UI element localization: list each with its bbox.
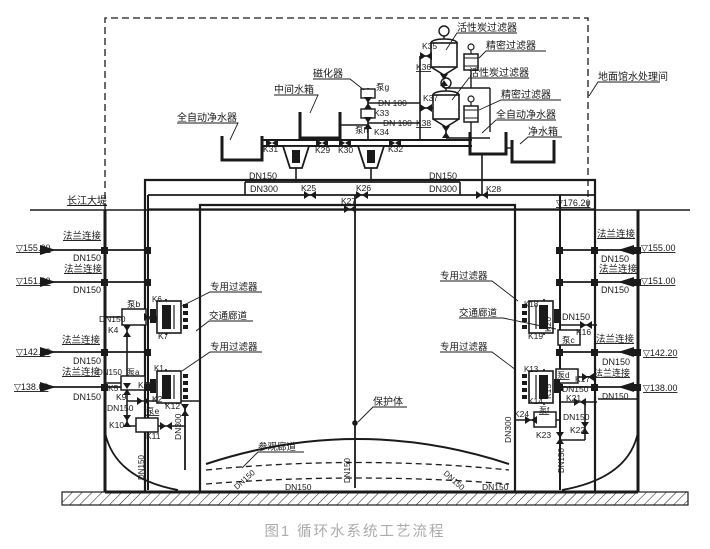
- label-k6: K6: [152, 295, 162, 304]
- label-flange-left-1: 法兰连接: [63, 230, 102, 242]
- label-dn150-bottom-1: DN150: [285, 482, 312, 492]
- label-flange-right-4: 法兰连接: [594, 367, 630, 378]
- label-k37: K37: [423, 93, 438, 103]
- label-elev-151-right: ▽151.00: [641, 276, 675, 286]
- label-flange-right-2: 法兰连接: [599, 263, 638, 275]
- label-dn150-left-2: DN150: [73, 285, 101, 295]
- label-flange-left-4: 法兰连接: [62, 366, 101, 378]
- label-k22: K22: [570, 425, 585, 435]
- label-k18: K18: [524, 300, 539, 309]
- label-elev-176-20: ▽176.20: [556, 198, 590, 208]
- label-activated-carbon-filter-1: 活性炭过滤器: [457, 21, 517, 34]
- label-k21: K21: [566, 393, 581, 403]
- pump-h-symbol: [361, 109, 375, 118]
- label-dn300-right-vert: DN300: [503, 416, 513, 443]
- label-elev-151-left: ▽151.00: [16, 276, 50, 286]
- label-elev-155-left: ▽155.00: [16, 243, 50, 253]
- label-k19: K19: [528, 331, 543, 341]
- label-pump-f: 泵f: [539, 406, 550, 415]
- label-traffic-corridor-left: 交通廊道: [209, 310, 248, 322]
- label-k30: K30: [338, 145, 353, 155]
- label-pump-g: 泵g: [376, 82, 390, 92]
- label-k23: K23: [536, 430, 551, 440]
- label-k8: K8: [147, 314, 158, 324]
- label-k38: K38: [416, 118, 431, 128]
- label-k7: K7: [158, 331, 169, 341]
- label-k9: K9: [116, 392, 127, 402]
- label-k15: K15: [543, 384, 553, 399]
- label-pump-c: 泵c: [562, 335, 576, 345]
- label-precision-filter-2: 精密过滤器: [501, 88, 551, 101]
- label-k27: K27: [341, 196, 356, 206]
- label-k35: K35: [422, 41, 437, 51]
- label-k17: K17: [575, 374, 590, 384]
- label-elev-142-left: ▽142.20: [16, 347, 50, 357]
- label-k31: K31: [263, 144, 278, 154]
- process-diagram: 活性炭过滤器精密过滤器活性炭过滤器精密过滤器全自动净水器净水箱磁化器中间水箱全自…: [0, 0, 710, 519]
- label-dn150-bottom-2: DN150: [482, 482, 509, 492]
- label-k33: K33: [374, 108, 389, 118]
- label-k3: K3: [138, 380, 149, 390]
- label-dn150-left-3: DN150: [99, 314, 126, 324]
- label-activated-carbon-filter-2: 活性炭过滤器: [469, 66, 529, 79]
- label-traffic-corridor-right: 交通廊道: [459, 307, 498, 319]
- label-dn150-left-4: DN150: [73, 356, 101, 366]
- label-k29: K29: [315, 145, 330, 155]
- label-k20: K20: [543, 317, 553, 332]
- label-dn150-right-1: DN150: [601, 254, 629, 264]
- figure-caption: 图1 循环水系统工艺流程: [0, 520, 710, 541]
- label-k25: K25: [301, 183, 316, 193]
- label-dn150-right-vert: DN150: [557, 448, 566, 473]
- label-pump-e: 泵e: [146, 406, 160, 416]
- label-k12: K12: [165, 401, 180, 411]
- label-auto-purifier-right: 全自动净水器: [496, 108, 556, 121]
- label-dn150-left-1: DN150: [73, 253, 101, 263]
- label-k4: K4: [108, 325, 119, 335]
- label-clean-water-tank: 净水箱: [528, 125, 558, 138]
- label-elev-142-right: ▽142.20: [643, 348, 677, 358]
- label-k32: K32: [388, 144, 403, 154]
- label-k36: K36: [416, 62, 431, 72]
- label-k34: K34: [374, 127, 389, 137]
- label-dedicated-filter-right-1: 专用过滤器: [440, 270, 488, 282]
- label-dedicated-filter-right-2: 专用过滤器: [440, 341, 488, 353]
- label-k14: K14: [528, 396, 543, 406]
- label-dedicated-filter-left-2: 专用过滤器: [210, 341, 258, 353]
- pump-g-symbol: [361, 89, 375, 98]
- label-elev-138-left: ▽138.00: [14, 382, 48, 392]
- label-elev-155-right: ▽155.00: [641, 243, 675, 253]
- pump-e-symbol: [136, 418, 158, 432]
- label-dn150-right-2: DN150: [601, 285, 629, 295]
- label-k24: K24: [514, 409, 529, 419]
- label-k2: K2: [152, 394, 163, 404]
- label-flange-right-1: 法兰连接: [597, 228, 636, 240]
- label-precision-filter-1: 精密过滤器: [486, 39, 536, 52]
- label-dn150-left-vert: DN150: [137, 455, 146, 480]
- process-flow-figure: 活性炭过滤器精密过滤器活性炭过滤器精密过滤器全自动净水器净水箱磁化器中间水箱全自…: [0, 0, 710, 549]
- label-pump-b: 泵b: [127, 299, 141, 309]
- label-k16: K16: [576, 327, 591, 337]
- label-k10: K10: [109, 420, 124, 430]
- label-dn300-top-right: DN300: [429, 184, 457, 194]
- label-k1: K1: [154, 364, 164, 373]
- label-flange-left-3: 法兰连接: [62, 334, 101, 346]
- label-pump-h: 泵h: [355, 125, 369, 135]
- label-dn150-right-4: DN150: [602, 357, 630, 367]
- label-dn150-top-right: DN150: [429, 171, 457, 181]
- label-treatment-room: 地面馆水处理间: [598, 70, 668, 83]
- label-k28: K28: [486, 184, 501, 194]
- foundation: [62, 492, 688, 505]
- label-dn150-right-7: DN150: [563, 412, 590, 422]
- label-k11: K11: [146, 431, 161, 441]
- label-dn150-left-7: DN150: [107, 403, 134, 413]
- pump-b-symbol: [122, 309, 146, 325]
- label-dn150-right-3: DN150: [562, 312, 590, 322]
- label-flange-left-2: 法兰连接: [64, 263, 103, 275]
- label-pump-a: 泵a: [127, 368, 140, 377]
- label-dn150-left-6: DN150: [73, 392, 101, 402]
- label-k26: K26: [356, 183, 371, 193]
- label-dedicated-filter-left-1: 专用过滤器: [210, 281, 258, 293]
- label-dn150-top-left: DN150: [249, 171, 277, 181]
- label-dn150-right-6: DN150: [602, 391, 629, 401]
- label-flange-right-3: 法兰连接: [596, 333, 635, 345]
- label-dn300-left-vert: DN300: [173, 413, 183, 440]
- label-intermediate-tank: 中间水箱: [274, 83, 314, 96]
- label-yangtze-dike: 长江大堤: [67, 194, 107, 207]
- label-visiting-corridor: 参观廊道: [258, 441, 297, 453]
- label-k13: K13: [524, 365, 539, 374]
- label-magnetizer: 磁化器: [313, 67, 343, 80]
- label-pump-d: 泵d: [557, 371, 569, 380]
- label-protection-body: 保护体: [373, 395, 403, 408]
- label-elev-138-right: ▽138.00: [643, 383, 677, 393]
- label-dn150-center-vert: DN150: [343, 458, 352, 483]
- label-dn150-left-5: DN150: [97, 368, 122, 377]
- label-dn300-top-left: DN300: [250, 184, 278, 194]
- label-auto-purifier-left: 全自动净水器: [177, 111, 237, 124]
- label-dn100-1: DN 100: [378, 98, 407, 108]
